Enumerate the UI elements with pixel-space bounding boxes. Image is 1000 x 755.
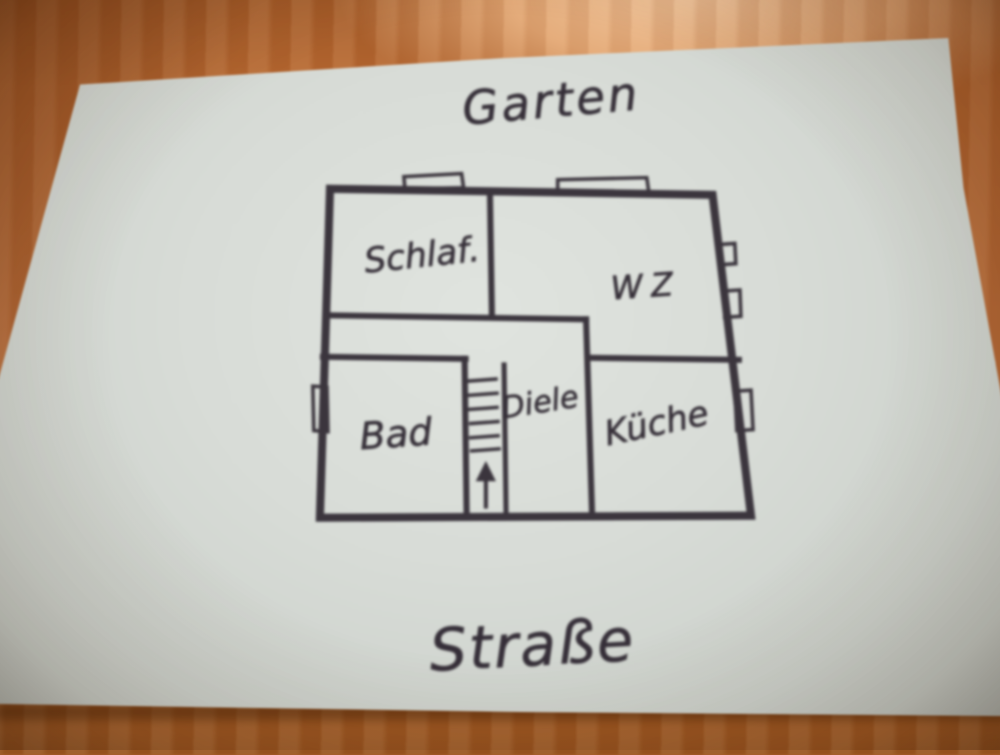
- floorplan-drawing: Garten Straße Schlaf. WZ Bad Diele Küche: [0, 0, 1000, 755]
- wall-bad-top: [323, 357, 466, 359]
- stair-steps: [469, 379, 499, 451]
- room-label-bad: Bad: [358, 409, 434, 458]
- up-arrow-icon: [476, 461, 496, 481]
- room-label-wz: WZ: [610, 265, 683, 308]
- wall-hall-top: [326, 315, 586, 319]
- room-label-diele: Diele: [499, 380, 581, 427]
- outer-walls: [320, 189, 751, 518]
- wall-diele-kueche: [586, 319, 592, 515]
- room-label-kueche: Küche: [601, 393, 712, 454]
- staircase: [469, 379, 499, 507]
- wall-wz-kueche: [589, 358, 739, 360]
- wall-bad-right-stair-rail: [465, 359, 467, 516]
- stair-right-rail: [504, 365, 506, 516]
- label-garten: Garten: [460, 66, 642, 135]
- room-label-schlaf: Schlaf.: [362, 230, 481, 282]
- wall-schlaf-wz-divider: [490, 192, 492, 317]
- label-strasse: Straße: [428, 606, 637, 685]
- photo-scene: Garten Straße Schlaf. WZ Bad Diele Küche: [0, 0, 1000, 755]
